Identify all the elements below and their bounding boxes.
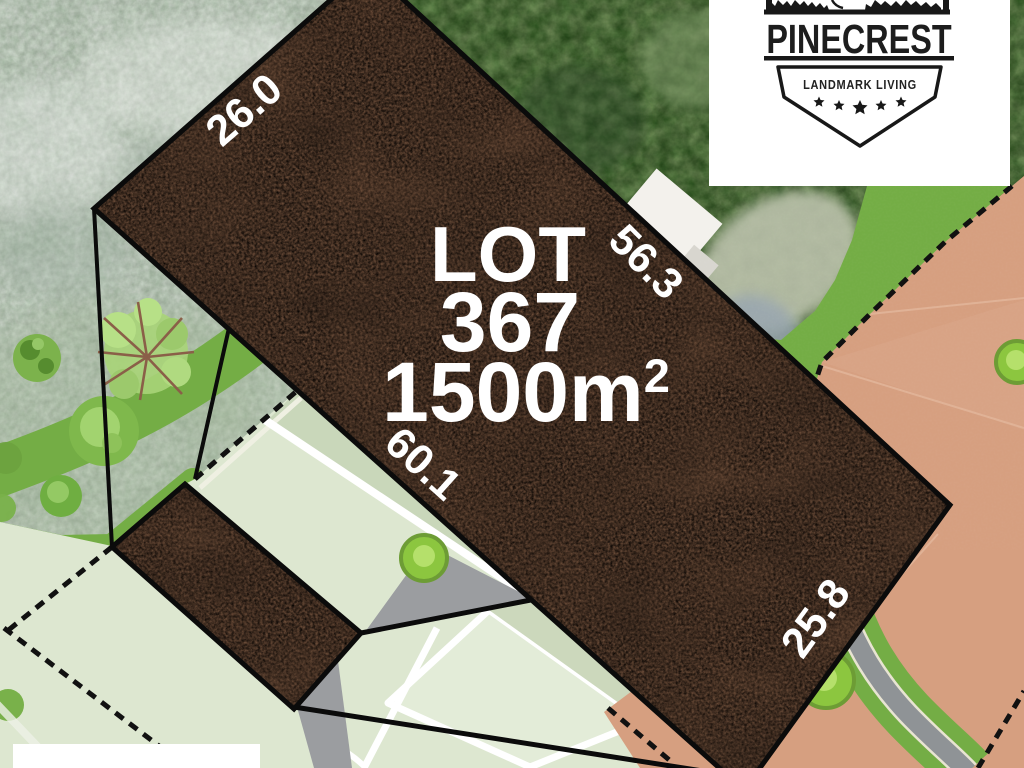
svg-text:1500m2: 1500m2	[382, 345, 670, 439]
svg-text:LANDMARK LIVING: LANDMARK LIVING	[803, 78, 917, 92]
svg-text:PINECREST: PINECREST	[766, 16, 952, 61]
